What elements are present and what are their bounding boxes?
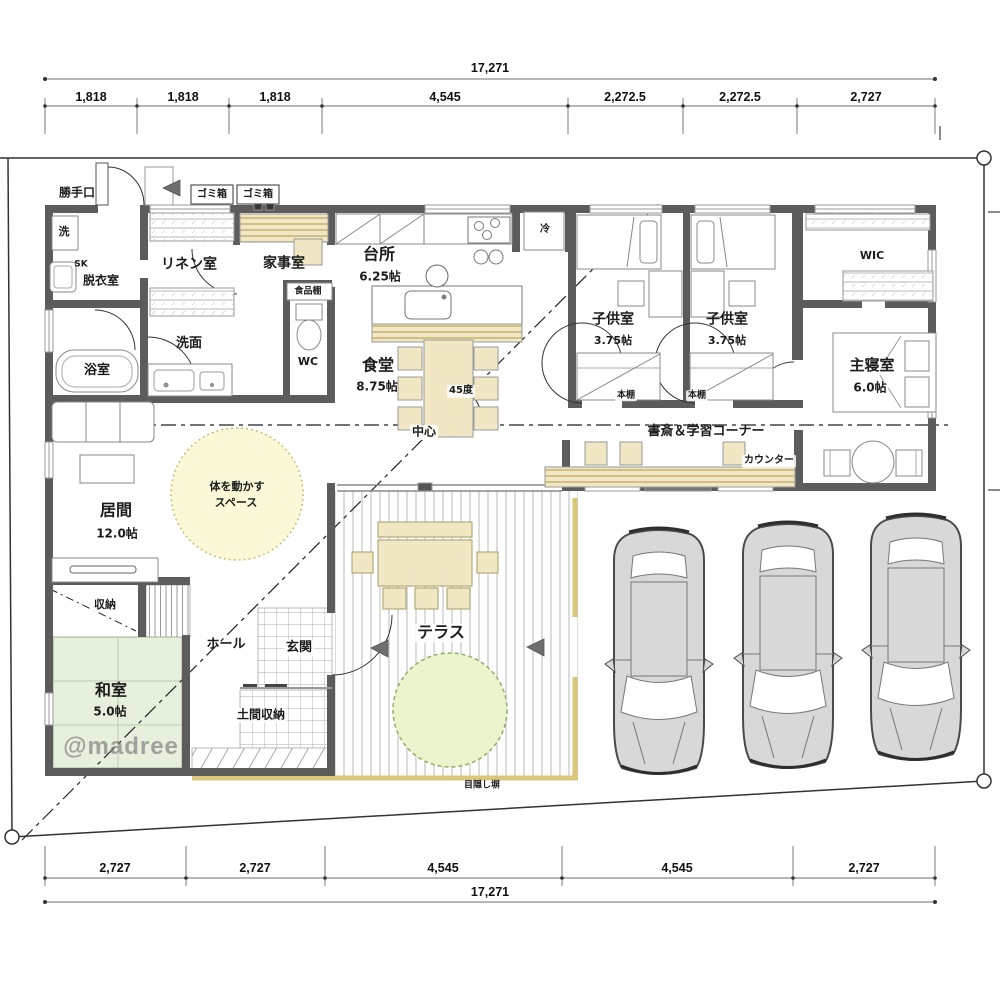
room-label-storage: 収納 bbox=[92, 598, 118, 612]
wic-closet bbox=[806, 214, 930, 230]
label-exercise-2: スペース bbox=[215, 497, 258, 509]
dim-top-seg-0: 1,818 bbox=[75, 90, 106, 104]
dim-bottom-seg-0: 2,727 bbox=[99, 861, 130, 875]
room-label-entrance: 玄関 bbox=[284, 640, 314, 656]
dim-top-seg-6: 2,727 bbox=[850, 90, 881, 104]
label-pantry: 食品棚 bbox=[294, 287, 321, 296]
room-size-kids1: 3.75帖 bbox=[594, 335, 632, 347]
room-label-bath: 浴室 bbox=[82, 363, 112, 379]
dim-bottom-seg-3: 4,545 bbox=[661, 861, 692, 875]
label-counter: カウンター bbox=[742, 455, 796, 468]
exercise-space-circle bbox=[171, 428, 303, 560]
room-label-wc: WC bbox=[298, 356, 318, 368]
room-size-living: 12.0帖 bbox=[96, 528, 138, 541]
utility-counter bbox=[240, 214, 328, 242]
dim-bottom-seg-4: 2,727 bbox=[848, 861, 879, 875]
room-label-kitchen: 台所 bbox=[363, 247, 395, 264]
study-counter bbox=[545, 467, 795, 487]
dim-top-seg-3: 4,545 bbox=[429, 90, 460, 104]
tv-icon bbox=[70, 566, 136, 573]
dim-top-seg-2: 1,818 bbox=[259, 90, 290, 104]
car-icon bbox=[605, 528, 713, 774]
dim-top-total: 17,271 bbox=[471, 61, 509, 75]
kids1-desk bbox=[649, 271, 682, 317]
room-label-kids1: 子供室 bbox=[592, 313, 634, 328]
floor-plan-drawing bbox=[0, 0, 1000, 1000]
room-label-linen: リネン室 bbox=[161, 258, 217, 273]
room-label-utility: 家事室 bbox=[263, 257, 305, 272]
label-center-mark: 中心 bbox=[410, 425, 438, 440]
room-size-kids2: 3.75帖 bbox=[708, 335, 746, 347]
kids-furniture bbox=[577, 215, 775, 400]
label-trash-1: ゴミ箱 bbox=[197, 190, 227, 201]
label-study-corner: 書斎＆学習コーナー bbox=[647, 425, 764, 439]
kitchen-sink-icon bbox=[474, 250, 488, 264]
coffee-table bbox=[80, 455, 134, 483]
label-trash-2: ゴミ箱 bbox=[243, 190, 273, 201]
label-angle: 45度 bbox=[447, 385, 475, 398]
living-furniture bbox=[52, 402, 303, 582]
room-label-living: 居間 bbox=[100, 503, 132, 520]
toilet-icon bbox=[297, 320, 321, 350]
floor-plan: 17,271 1,818 1,818 1,818 4,545 2,272.5 2… bbox=[0, 0, 1000, 1000]
room-label-sk: SK bbox=[74, 260, 87, 269]
dim-top-seg-5: 2,272.5 bbox=[719, 90, 761, 104]
car-icon bbox=[734, 522, 842, 768]
room-size-washitsu: 5.0帖 bbox=[93, 706, 126, 719]
car-icon bbox=[862, 514, 970, 760]
room-size-master: 6.0帖 bbox=[851, 381, 888, 396]
dim-bottom-total: 17,271 bbox=[471, 885, 509, 899]
room-label-master: 主寝室 bbox=[847, 357, 896, 375]
label-bookshelf-1: 本棚 bbox=[615, 390, 637, 401]
dim-top-seg-1: 1,818 bbox=[167, 90, 198, 104]
back-door-leaf bbox=[96, 163, 108, 205]
dim-top-seg-4: 2,272.5 bbox=[604, 90, 646, 104]
room-label-dressing: 脱衣室 bbox=[83, 275, 119, 288]
room-label-terrace: テラス bbox=[415, 624, 467, 643]
dimension-lines-top bbox=[43, 77, 937, 134]
round-table-icon bbox=[852, 441, 894, 483]
dim-bottom-seg-1: 2,727 bbox=[239, 861, 270, 875]
room-label-wic: WIC bbox=[860, 250, 884, 262]
label-back-door: 勝手口 bbox=[59, 187, 95, 200]
label-bookshelf-2: 本棚 bbox=[686, 390, 708, 401]
room-label-dining: 食堂 bbox=[362, 358, 394, 375]
room-size-dining: 8.75帖 bbox=[356, 381, 398, 394]
toilet-tank bbox=[296, 304, 322, 320]
dim-bottom-seg-2: 4,545 bbox=[427, 861, 458, 875]
room-label-laundry: 洗 bbox=[59, 226, 70, 238]
room-label-hall: ホール bbox=[206, 638, 245, 652]
watermark: @madree bbox=[63, 733, 179, 761]
room-size-kitchen: 6.25帖 bbox=[359, 271, 401, 284]
label-privacy-fence: 目隠し塀 bbox=[462, 780, 502, 791]
room-label-kids2: 子供室 bbox=[706, 313, 748, 328]
tree-icon bbox=[393, 653, 507, 767]
room-label-doma: 土間収納 bbox=[235, 708, 287, 723]
label-exercise-1: 体を動かす bbox=[210, 481, 265, 493]
label-fridge: 冷 bbox=[540, 225, 550, 236]
room-label-washroom: 洗面 bbox=[176, 337, 202, 351]
sofa-icon bbox=[52, 402, 154, 442]
room-label-washitsu: 和室 bbox=[95, 683, 127, 700]
linen-closet bbox=[150, 213, 234, 241]
kids2-desk bbox=[691, 271, 724, 317]
parking bbox=[605, 514, 970, 774]
